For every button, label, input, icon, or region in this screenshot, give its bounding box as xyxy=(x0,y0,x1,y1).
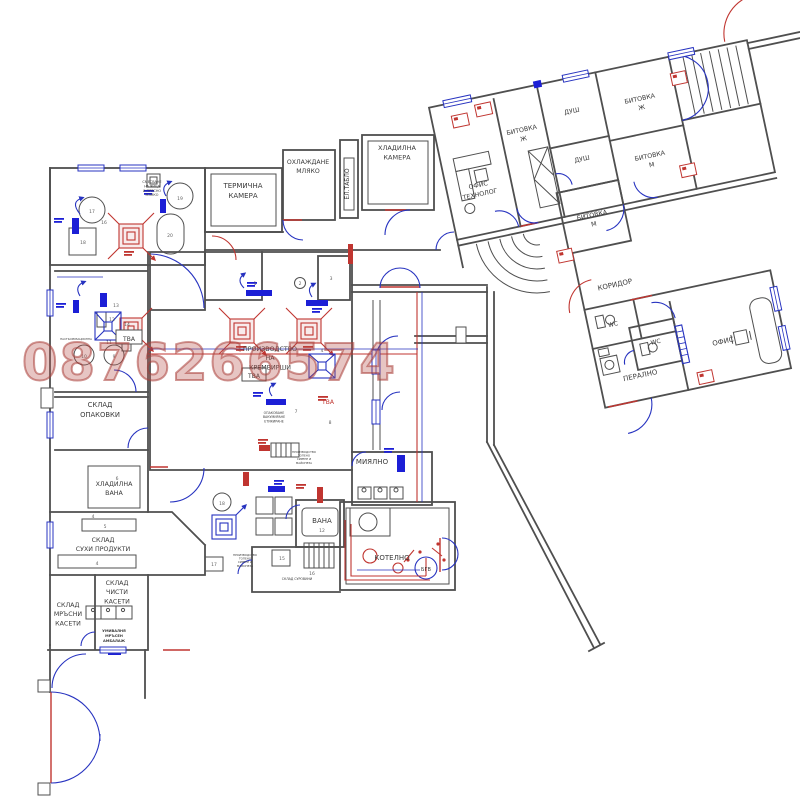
room-number: 14 xyxy=(124,322,130,328)
blue-supply-box xyxy=(309,354,335,378)
room-number: 12 xyxy=(319,528,325,534)
window-marks xyxy=(47,165,380,653)
room-number: 16 xyxy=(101,220,107,226)
room-label-ohlazhdane-mlyako: ОХЛАЖДАНЕМЛЯКО xyxy=(287,159,329,175)
room-number: 7 xyxy=(295,409,298,415)
room-number: 9 xyxy=(113,354,116,360)
wing-walls xyxy=(429,27,800,431)
room-number: 12 xyxy=(109,317,115,323)
room-label-sklad-opakovki: СКЛАДОПАКОВКИ xyxy=(80,401,120,419)
wing-blue-elements xyxy=(443,41,800,457)
room-label-kotelno: КОТЕЛНО xyxy=(374,554,410,562)
room-label-proizvodstvo-note-2: ПРОИЗВОДСТВОТОПЕНОСИРЕНЕ ИМАЙОНЕЗА xyxy=(233,553,258,568)
room-number: 15 xyxy=(279,556,285,562)
room-number: 3 xyxy=(330,276,333,282)
room-label-tva-2: ТВА xyxy=(247,373,261,380)
room-number: 20 xyxy=(167,233,173,239)
blue-unit-tags xyxy=(54,190,394,485)
room-label-tva-1: ТВА xyxy=(122,336,136,343)
room-label-opakovane-note: ОПАКОВАНЕВАКУМИРАНЕЕТИКИРАНЕ xyxy=(263,411,285,423)
room-label-vana: ВАНА xyxy=(312,517,332,525)
room-label-el-tablo: ЕЛ.ТАБЛО xyxy=(344,168,351,200)
room-number: 4 xyxy=(96,561,99,567)
room-number: 8 xyxy=(329,420,332,426)
room-label-sklad-mrasni-kaseti: СКЛАДМРЪСНИКАСЕТИ xyxy=(54,602,83,627)
room-number: 4 xyxy=(92,514,95,520)
room-number: 16 xyxy=(309,571,315,577)
room-label-umivalnya-note: УМИВАЛНЯМРЪСЕНАМБАЛАЖ xyxy=(102,629,126,643)
wing-furniture xyxy=(453,100,783,419)
room-number: 13 xyxy=(113,303,119,309)
room-label-hladilna-vana: ХЛАДИЛНАВАНА xyxy=(96,481,133,497)
room-label-wc-1: WC xyxy=(607,320,618,329)
room-label-dush-1: ДУШ xyxy=(564,107,581,117)
room-number: 18 xyxy=(80,240,86,246)
room-number: 17 xyxy=(211,562,217,568)
room-number: 1 xyxy=(254,281,257,287)
room-label-miyalno: МИЯЛНО xyxy=(356,458,389,466)
room-number: 2 xyxy=(299,281,302,287)
room-label-termichna-kamera: ТЕРМИЧНАКАМЕРА xyxy=(222,182,262,200)
room-label-pasteurizacionna-note: ПАСТЬОРИЗАЦИОННА xyxy=(60,337,92,341)
wing-room-labels: ОФИСТЕХНОЛОГБИТОВКАЖДУШДУШБИТОВКАЖБИТОВК… xyxy=(448,85,738,408)
room-number: 19 xyxy=(177,196,183,202)
floor-plan-page: ОФИСТЕХНОЛОГБИТОВКАЖДУШДУШБИТОВКАЖБИТОВК… xyxy=(0,0,800,797)
room-number: 11 xyxy=(106,340,112,346)
room-numbers: 1719182016131214111091234786544121817151… xyxy=(80,196,332,577)
room-label-ofis: ОФИС xyxy=(712,336,735,348)
room-number: 18 xyxy=(219,501,225,507)
room-label-wc-2: WC xyxy=(650,338,661,347)
room-label-ofis-tehnolog: ОФИСТЕХНОЛОГ xyxy=(459,179,498,202)
room-label-sklad-suhi-produkti: СКЛАДСУХИ ПРОДУКТИ xyxy=(76,537,131,553)
room-label-koridor: КОРИДОР xyxy=(597,277,633,292)
room-number: 17 xyxy=(89,209,95,215)
room-label-mixing-note: СМЕСВАНЕНА ЯЙЦАИ ПРЯСНОМЛЯКО xyxy=(142,180,161,197)
room-label-proizvodstvo-kremvirshi: ПРОИЗВОДСТВОНАКРЕМВИРШИ xyxy=(243,346,297,371)
right-wing: ОФИСТЕХНОЛОГБИТОВКАЖДУШДУШБИТОВКАЖБИТОВК… xyxy=(420,0,800,460)
room-label-bitovka-m-2: БИТОВКАМ xyxy=(576,209,610,231)
room-number: 4 xyxy=(321,348,324,354)
room-number: 10 xyxy=(81,354,87,360)
room-number: 5 xyxy=(104,524,107,530)
room-label-bitovka-j-2: БИТОВКАЖ xyxy=(624,92,658,114)
room-number: 6 xyxy=(116,476,119,482)
floor-plan-drawing: ОФИСТЕХНОЛОГБИТОВКАЖДУШДУШБИТОВКАЖБИТОВК… xyxy=(0,0,800,797)
room-label-dush-2: ДУШ xyxy=(574,154,591,164)
room-label-sklad-surovini-note: СКЛАД СУРОВИНИ xyxy=(282,577,313,581)
room-label-bitovka-j-1: БИТОВКАЖ xyxy=(506,124,540,146)
room-label-tva-3: ТВА xyxy=(321,399,335,406)
blue-diffuser xyxy=(212,506,245,539)
room-label-sklad-chisti-kaseti: СКЛАДЧИСТИКАСЕТИ xyxy=(104,580,130,605)
room-label-bgv: БГВ xyxy=(421,567,431,573)
room-label-hladilna-kamera: ХЛАДИЛНАКАМЕРА xyxy=(378,144,417,161)
room-label-bitovka-m-1: БИТОВКАМ xyxy=(634,150,668,172)
